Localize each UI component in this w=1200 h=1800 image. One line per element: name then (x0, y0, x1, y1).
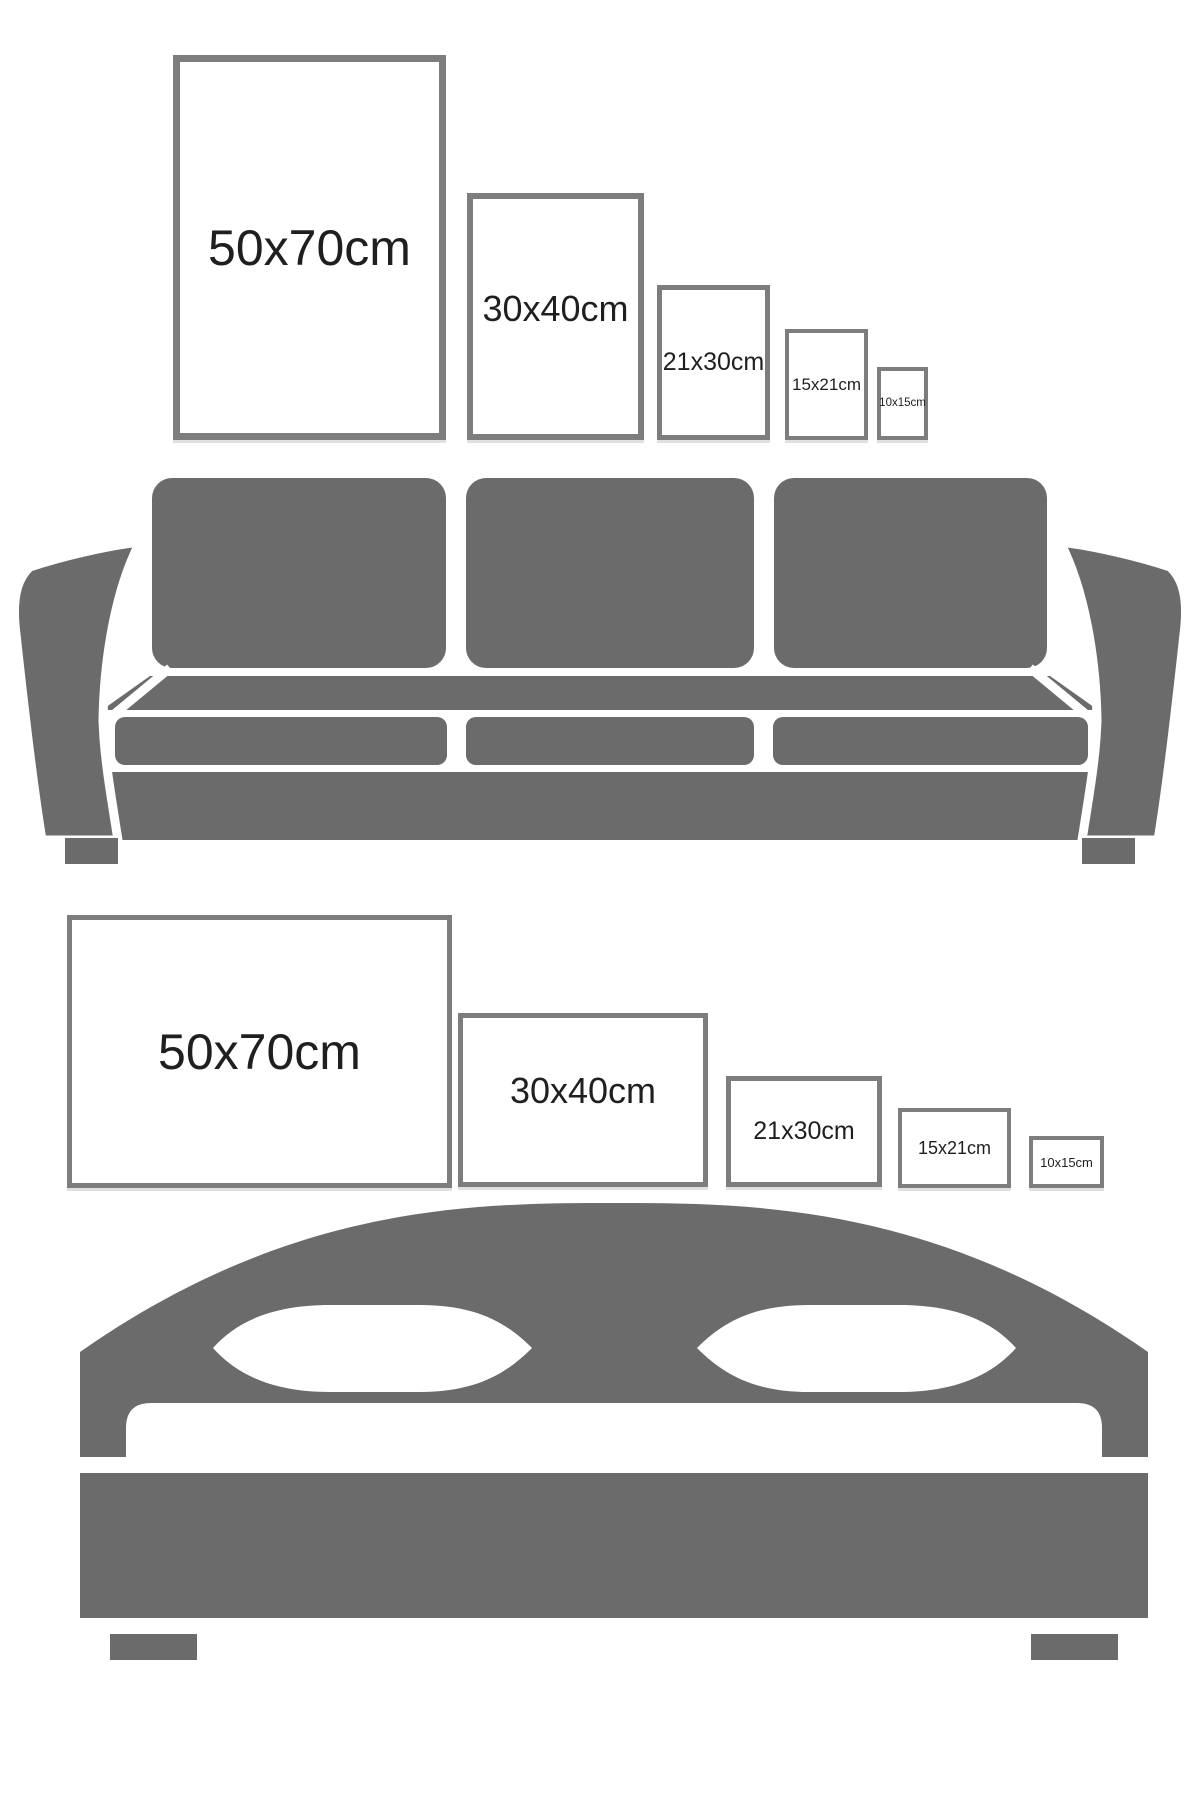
sofa-back-cushion (466, 478, 754, 668)
sofa-back-cushion (152, 478, 446, 668)
bed-leg-right (1031, 1634, 1118, 1660)
sofa-seat-cushion (466, 717, 754, 765)
sofa-back-cushion (774, 478, 1047, 668)
sofa-leg-left (65, 838, 118, 864)
furniture-illustrations (0, 0, 1200, 1800)
sofa-icon (14, 478, 1185, 864)
sofa-seat-cushion (773, 717, 1088, 765)
bed-icon (80, 1203, 1148, 1660)
sofa-base (45, 772, 1155, 840)
bed-base (80, 1473, 1148, 1618)
sofa-seat-cushion (115, 717, 447, 765)
sofa-leg-right (1082, 838, 1135, 864)
bed-leg-left (110, 1634, 197, 1660)
poster-size-guide: 50x70cm 30x40cm 21x30cm 15x21cm 10x15cm … (0, 0, 1200, 1800)
bed-headboard (80, 1203, 1148, 1457)
sofa-seat-deck (102, 676, 1098, 710)
